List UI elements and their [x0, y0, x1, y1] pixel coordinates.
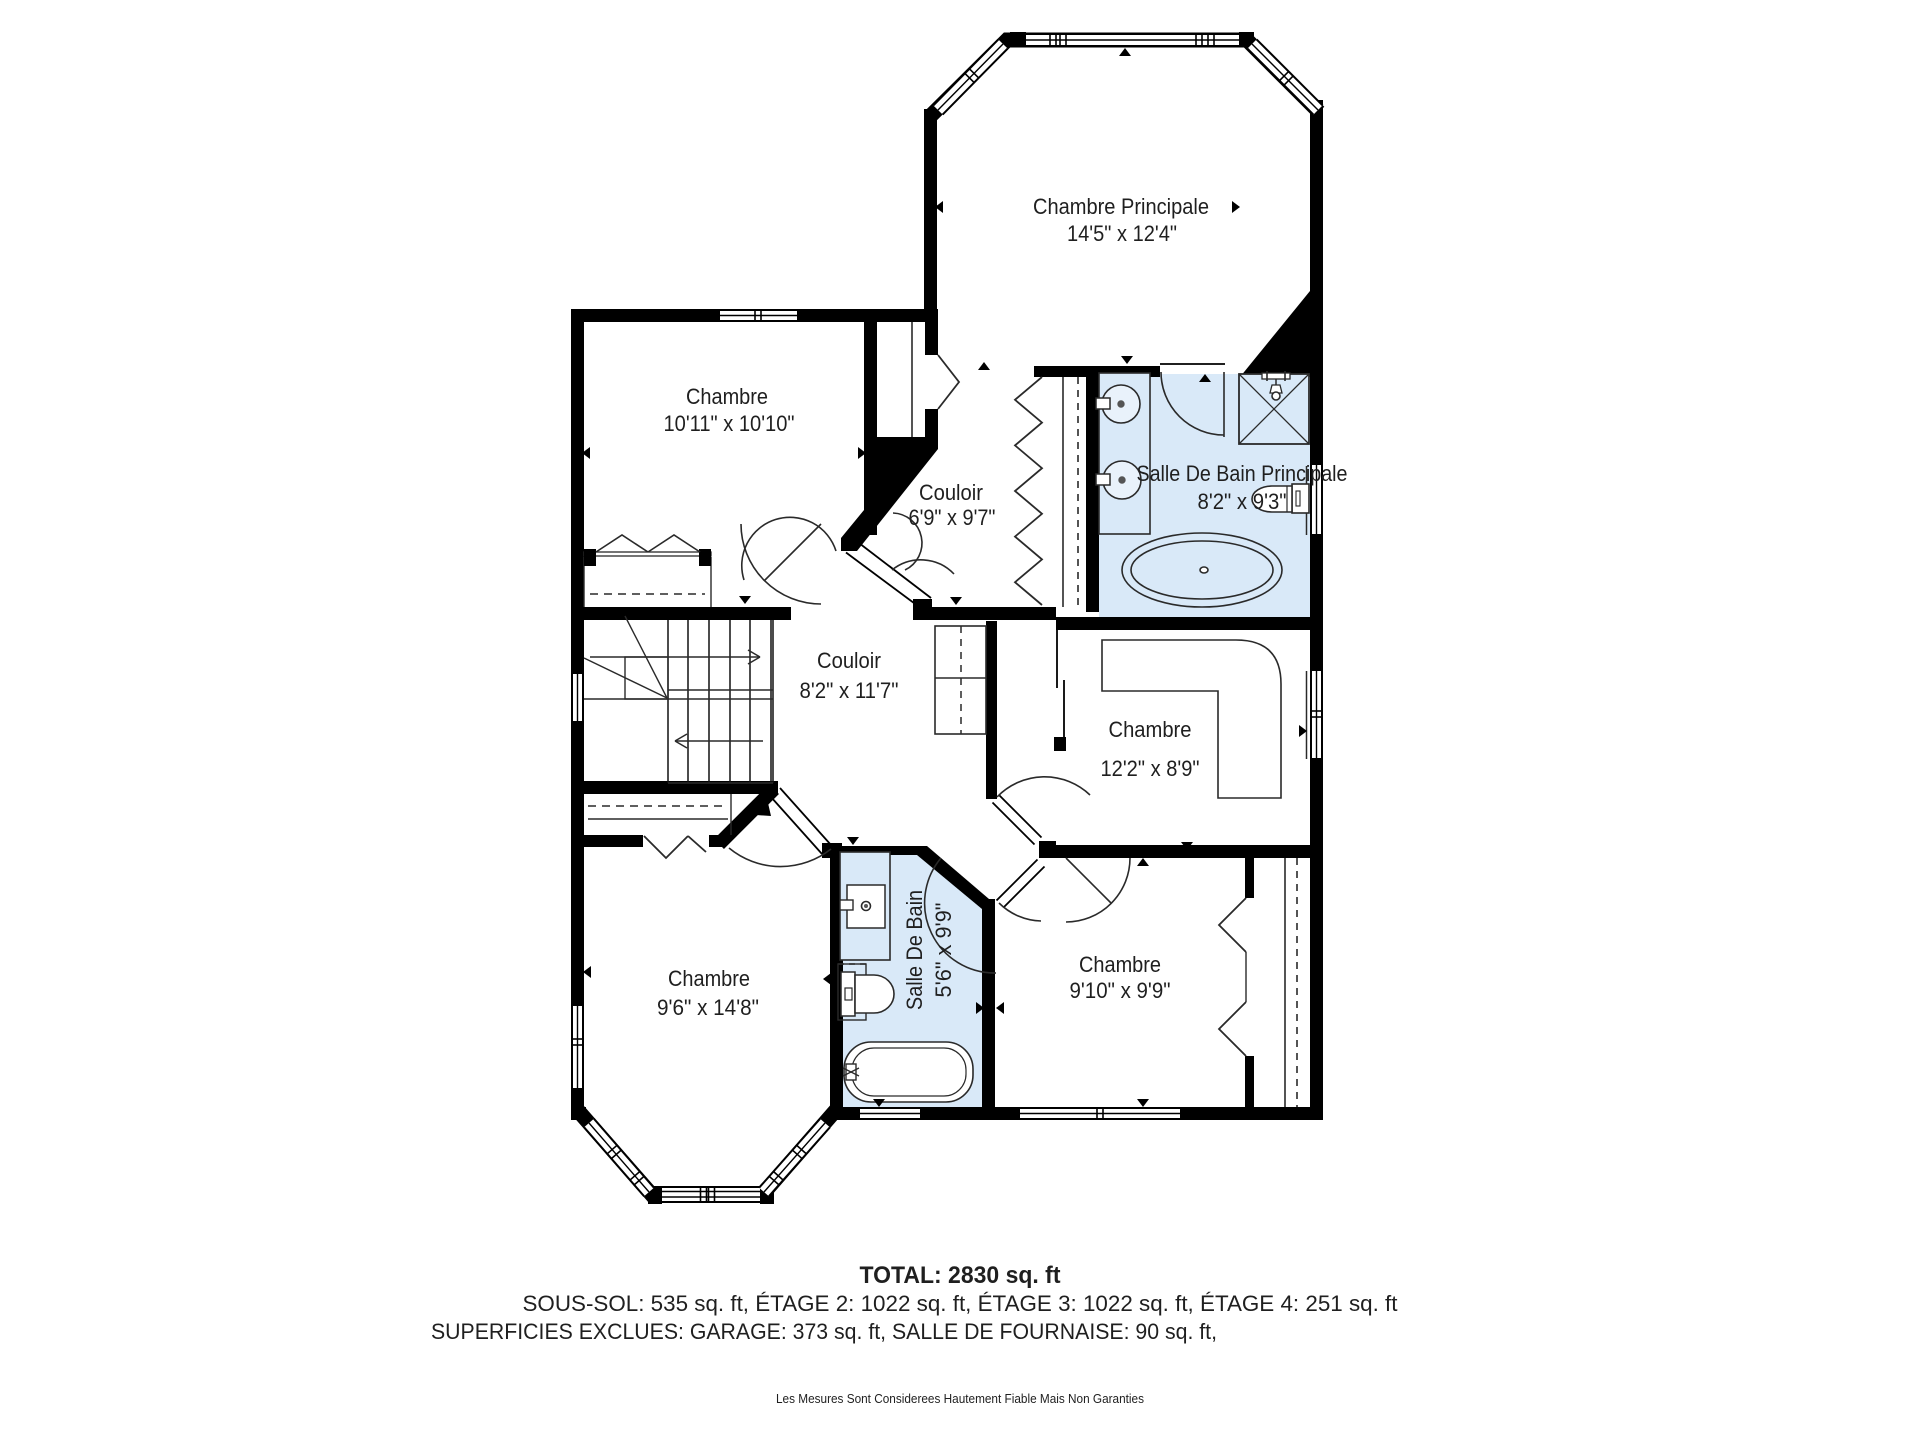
svg-text:9'6" x 14'8": 9'6" x 14'8"	[657, 995, 759, 1020]
svg-text:14'5" x 12'4": 14'5" x 12'4"	[1067, 221, 1177, 246]
svg-text:Chambre: Chambre	[1109, 717, 1192, 742]
svg-text:Chambre: Chambre	[1079, 952, 1161, 977]
svg-text:SOUS-SOL: 535 sq. ft, ÉTAGE 2:: SOUS-SOL: 535 sq. ft, ÉTAGE 2: 1022 sq. …	[523, 1291, 1398, 1316]
svg-text:SUPERFICIES EXCLUES: GARAGE: 3: SUPERFICIES EXCLUES: GARAGE: 373 sq. ft,…	[431, 1319, 1217, 1344]
svg-text:Chambre: Chambre	[686, 384, 768, 409]
svg-text:Couloir: Couloir	[817, 648, 881, 673]
svg-text:Les Mesures Sont Considerees H: Les Mesures Sont Considerees Hautement F…	[776, 1391, 1144, 1406]
svg-text:9'10" x 9'9": 9'10" x 9'9"	[1070, 978, 1171, 1003]
svg-text:10'11" x 10'10": 10'11" x 10'10"	[664, 411, 795, 436]
svg-text:8'2" x 11'7": 8'2" x 11'7"	[800, 678, 899, 703]
svg-text:Couloir: Couloir	[919, 480, 983, 505]
svg-text:TOTAL: 2830 sq. ft: TOTAL: 2830 sq. ft	[860, 1262, 1061, 1289]
svg-text:Salle De Bain Principale: Salle De Bain Principale	[1137, 461, 1348, 486]
svg-text:Chambre Principale: Chambre Principale	[1033, 194, 1209, 219]
svg-text:12'2" x 8'9": 12'2" x 8'9"	[1101, 756, 1200, 781]
svg-text:Salle De Bain: Salle De Bain	[902, 890, 927, 1010]
svg-text:Chambre: Chambre	[668, 966, 750, 991]
svg-text:6'9" x 9'7": 6'9" x 9'7"	[909, 505, 996, 530]
svg-text:5'6" x 9'9": 5'6" x 9'9"	[931, 903, 956, 998]
svg-text:8'2" x 9'3": 8'2" x 9'3"	[1198, 489, 1287, 514]
